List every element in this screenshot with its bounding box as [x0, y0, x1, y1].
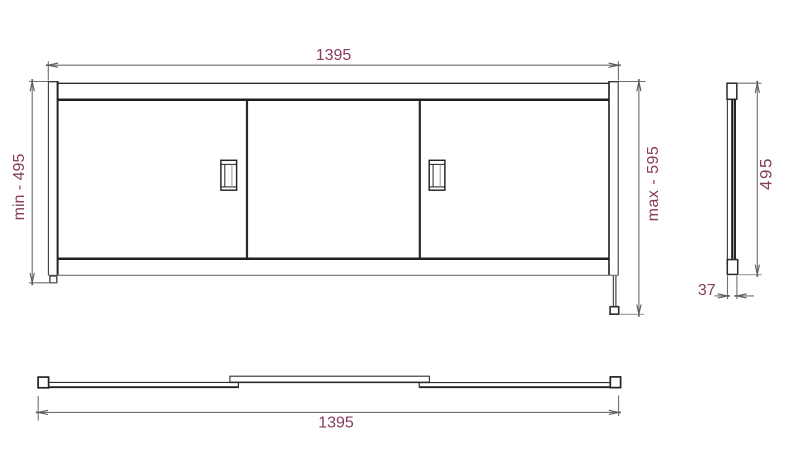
svg-text:37: 37 — [698, 282, 716, 299]
svg-text:495: 495 — [757, 157, 776, 190]
svg-text:1395: 1395 — [318, 414, 354, 431]
svg-text:min - 495: min - 495 — [11, 154, 28, 221]
svg-text:1395: 1395 — [316, 47, 352, 64]
svg-text:max - 595: max - 595 — [645, 146, 662, 222]
